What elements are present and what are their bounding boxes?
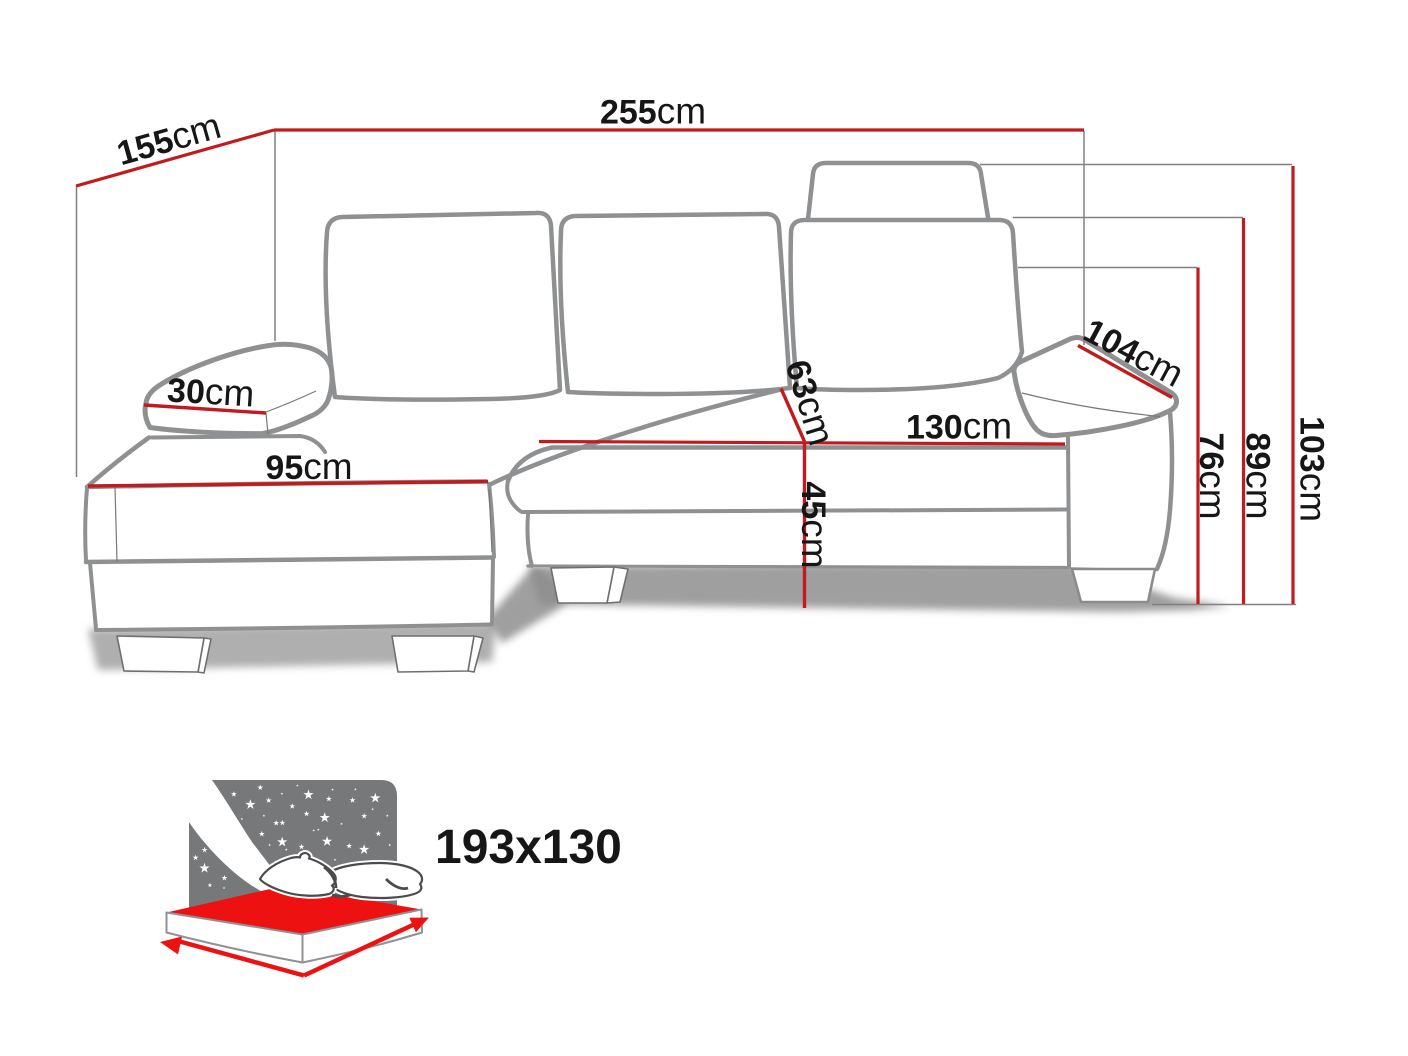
svg-text:130cm: 130cm <box>906 406 1012 447</box>
svg-text:255cm: 255cm <box>600 91 706 132</box>
svg-text:76cm: 76cm <box>1192 432 1233 519</box>
svg-text:95cm: 95cm <box>265 446 352 487</box>
svg-text:30cm: 30cm <box>166 368 255 414</box>
svg-text:103cm: 103cm <box>1293 416 1334 522</box>
svg-text:193x130: 193x130 <box>435 821 622 874</box>
svg-text:89cm: 89cm <box>1239 432 1280 519</box>
svg-text:45cm: 45cm <box>794 481 835 568</box>
